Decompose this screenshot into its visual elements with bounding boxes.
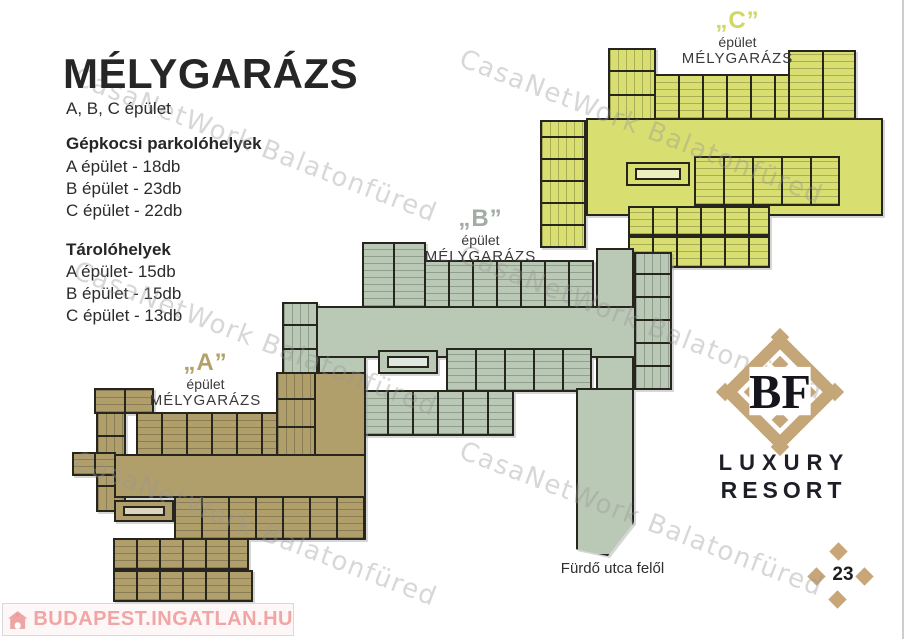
- bf-diamond-emblem: BF: [714, 326, 846, 458]
- building-b-name: MÉLYGARÁZS: [408, 249, 553, 266]
- building-a-sub: épület: [133, 377, 278, 393]
- building-a-letter: „A”: [133, 350, 278, 377]
- building-b-label: „B” épület MÉLYGARÁZS: [408, 206, 553, 265]
- bf-monogram: BF: [749, 366, 811, 419]
- building-c-sub: épület: [665, 35, 810, 51]
- page-title: MÉLYGARÁZS: [63, 50, 358, 98]
- building-b-sub: épület: [408, 233, 553, 249]
- a-mid-row-stalls: [174, 496, 366, 540]
- building-c-name: MÉLYGARÁZS: [665, 51, 810, 68]
- building-b-letter: „B”: [408, 206, 553, 233]
- a-bottom-row-stalls: [113, 570, 253, 602]
- budapest-ingatlan-logo: BUDAPEST.INGATLAN.HU: [2, 603, 294, 636]
- house-icon: [8, 607, 27, 633]
- page-subtitle: A, B, C épület: [66, 99, 171, 119]
- logo-word-resort: RESORT: [706, 477, 856, 504]
- page-number: 23: [826, 564, 860, 586]
- a-right-block: [314, 372, 366, 456]
- building-c-letter: „C”: [665, 8, 810, 35]
- floorplan-page: CasaNetWork Balatonfüred CasaNetWork Bal…: [0, 0, 909, 639]
- a-midleft-stalls: [276, 372, 316, 456]
- a-bottom-row-stalls: [113, 538, 249, 570]
- a-drive-lane: [114, 454, 366, 498]
- a-ramp: [114, 500, 174, 522]
- building-a-name: MÉLYGARÁZS: [133, 393, 278, 410]
- street-direction-label: Fürdő utca felől: [525, 560, 700, 577]
- a-west-stalls: [72, 452, 116, 476]
- bf-luxury-resort-logo: BF: [714, 326, 846, 458]
- page-edge-line: [902, 0, 904, 639]
- building-c-label: „C” épület MÉLYGARÁZS: [665, 8, 810, 67]
- building-a-label: „A” épület MÉLYGARÁZS: [133, 350, 278, 409]
- portal-logo-text: BUDAPEST.INGATLAN.HU: [33, 608, 293, 631]
